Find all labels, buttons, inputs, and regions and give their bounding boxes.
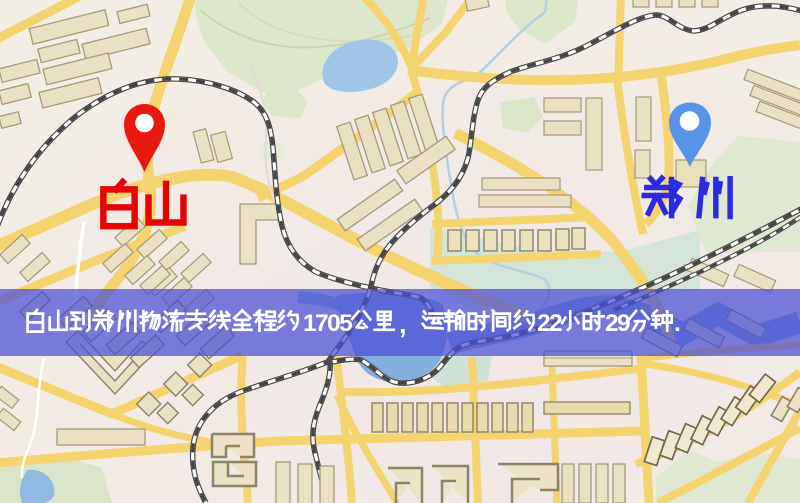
svg-text:.: . xyxy=(674,310,680,337)
svg-text:29: 29 xyxy=(605,310,630,337)
svg-text:1705: 1705 xyxy=(303,310,352,337)
svg-text:,: , xyxy=(399,309,405,339)
svg-text:22: 22 xyxy=(537,310,562,337)
